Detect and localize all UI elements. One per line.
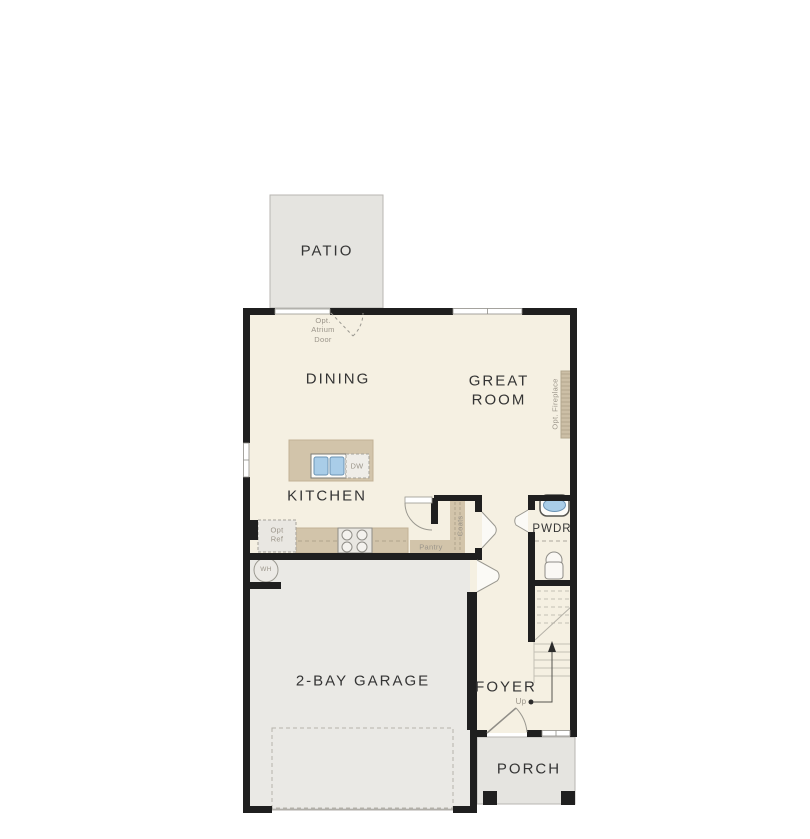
great-room-label: GREAT ROOM [456,372,542,410]
patio-label: PATIO [301,243,354,262]
atrium-door-frame [275,309,330,314]
garage-label: 2-BAY GARAGE [296,673,430,692]
window [244,443,250,477]
porch-post [483,791,497,805]
kitchen-sink-icon [311,454,346,478]
kitchen-label: KITCHEN [287,488,367,507]
opt-atrium-door-label: Opt. Atrium Door [306,316,340,344]
pwdr-label: PWDR [532,522,571,536]
floor-plan-drawing [0,0,810,839]
toilet-icon [545,552,563,579]
window [453,309,522,315]
fireplace-icon [561,371,571,438]
stove-icon [338,528,372,553]
window [542,731,570,737]
porch-post [561,791,575,805]
opt-fireplace-label: Opt. Fireplace [550,378,559,429]
opt-ref-label: Opt Ref [265,526,289,545]
pantry-label: Pantry [419,542,442,551]
dishwasher-label: DW [350,461,363,470]
foyer-label: FOYER [475,679,537,698]
floor-plan-page: PATIO DINING GREAT ROOM KITCHEN 2-BAY GA… [0,0,810,839]
coats-label: Coats [455,515,464,536]
dining-label: DINING [306,371,371,390]
water-heater-label: WH [260,566,271,574]
up-label: Up [516,697,527,707]
porch-label: PORCH [497,761,561,780]
